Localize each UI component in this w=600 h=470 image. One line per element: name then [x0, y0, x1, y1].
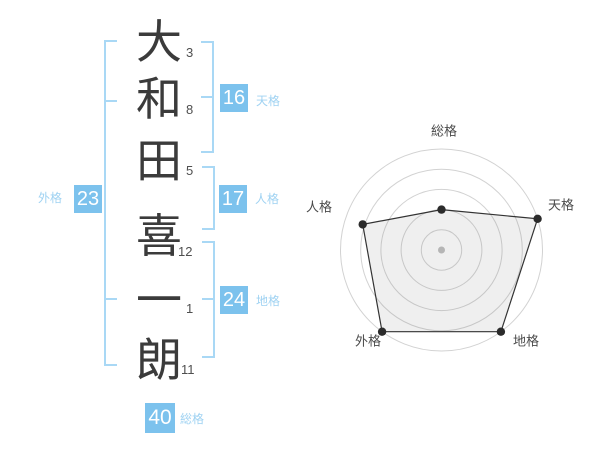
soukaku-value-badge: 40: [145, 403, 175, 433]
radar-data-point: [497, 328, 505, 336]
jinkaku-label: 人格: [255, 193, 279, 205]
radar-data-point: [437, 205, 445, 213]
chikaku-label: 地格: [256, 295, 280, 307]
gaikaku-label: 外格: [38, 192, 62, 204]
tenkaku-value-badge: 16: [220, 84, 248, 112]
radar-data-polygon: [363, 210, 538, 332]
radar-axis-label: 外格: [355, 334, 381, 349]
jinkaku-value-badge: 17: [219, 185, 247, 213]
stroke-count: 11: [181, 363, 203, 377]
name-character: 一: [131, 272, 187, 328]
name-fortune-panel: 大 和 田 喜 一 朗 3 8 5 12 1 11 16 17 24 23 40: [0, 0, 600, 470]
stroke-count: 1: [186, 302, 208, 316]
radar-axis-label: 地格: [513, 334, 539, 349]
gokaku-radar-chart: 総格天格地格外格人格: [293, 112, 593, 357]
soukaku-label: 総格: [180, 413, 204, 425]
stroke-count: 12: [178, 245, 200, 259]
stroke-count: 8: [186, 103, 208, 117]
radar-axis-label: 天格: [548, 198, 574, 213]
stroke-count: 3: [186, 46, 208, 60]
name-character: 和: [131, 71, 187, 127]
tenkaku-label: 天格: [256, 95, 280, 107]
name-character: 大: [131, 14, 187, 70]
name-character: 朗: [131, 332, 187, 388]
radar-data-point: [359, 220, 367, 228]
radar-axis-label: 人格: [306, 200, 332, 215]
chikaku-value-badge: 24: [220, 286, 248, 314]
gaikaku-value-badge: 23: [74, 185, 102, 213]
radar-data-point: [533, 215, 541, 223]
radar-axis-label: 総格: [431, 124, 457, 139]
name-character: 田: [131, 133, 187, 189]
